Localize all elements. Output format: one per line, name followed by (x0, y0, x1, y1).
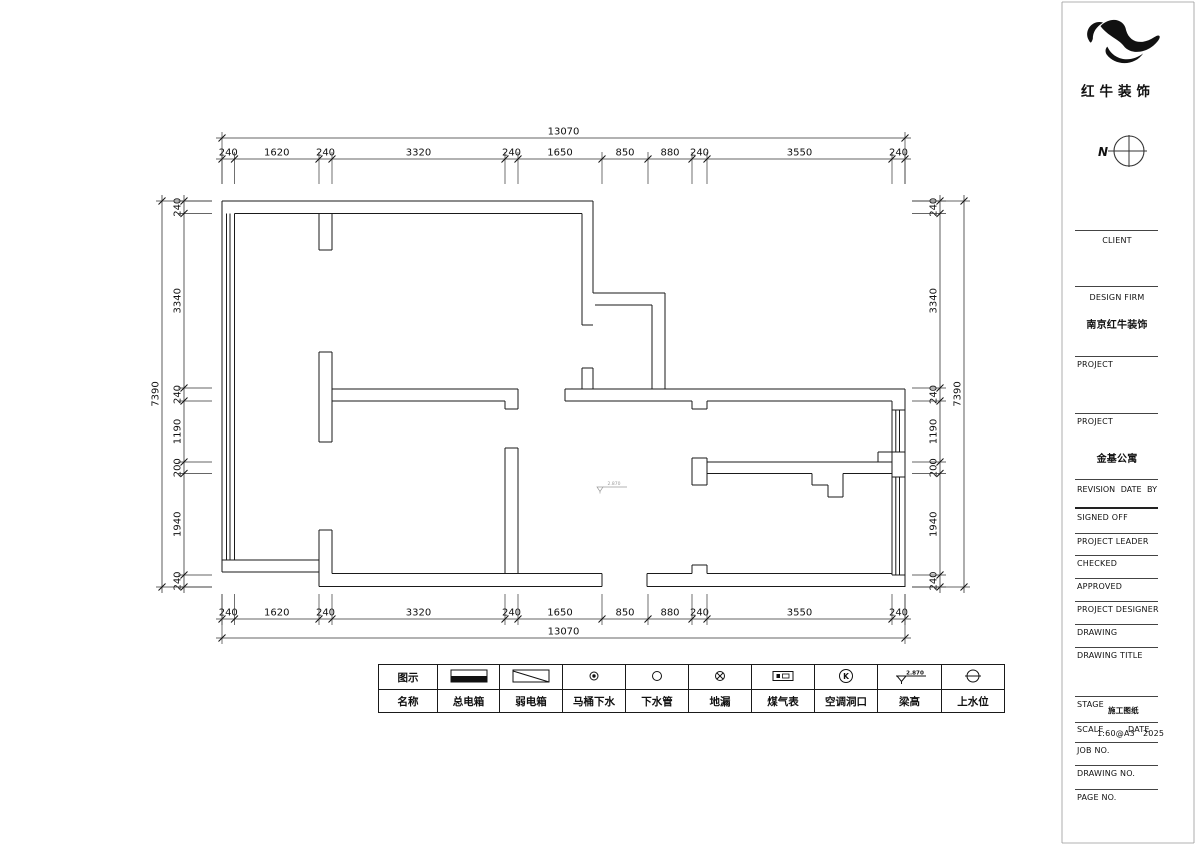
brand-logo-text: 红牛装饰 (1072, 80, 1164, 100)
legend-table: 图示 K 2.870 名称 总电箱 弱电箱 马桶下水 下水管 地漏 煤气表 空调… (378, 664, 1005, 713)
dim-value: 200 (173, 458, 184, 477)
legend-symbol-row-label: 图示 (379, 665, 438, 690)
date-value: 2025 (1143, 729, 1164, 738)
dim-value: 7390 (953, 381, 964, 406)
revision-row: REVISION DATE BY (1077, 485, 1157, 494)
dim-value: 240 (929, 571, 940, 590)
stage-value: 施工图纸 (1108, 705, 1139, 716)
project-value: 金基公寓 (1075, 450, 1159, 465)
legend-item-name: 空调洞口 (815, 690, 878, 713)
walls-layer (222, 201, 905, 587)
dim-value: 1620 (264, 148, 289, 159)
drawing-sheet: { "brand": { "logo_text": "红牛装饰" }, "com… (0, 0, 1200, 845)
dim-value: 1650 (547, 608, 572, 619)
dim-value: 240 (690, 148, 709, 159)
job-no-label: JOB NO. (1077, 746, 1110, 755)
drain-pipe-icon (635, 666, 679, 686)
by-label: BY (1147, 485, 1157, 494)
legend-name-row: 名称 总电箱 弱电箱 马桶下水 下水管 地漏 煤气表 空调洞口 梁高 上水位 (379, 690, 1005, 713)
legend-item-name: 梁高 (878, 690, 942, 713)
dim-top-chain: 2401620240332024016508508802403550240 (216, 148, 911, 185)
design-firm-label: DESIGN FIRM (1075, 293, 1159, 302)
legend-item-name: 上水位 (942, 690, 1005, 713)
dim-right-total: 7390 (912, 195, 970, 593)
toilet-drain-icon (572, 666, 616, 686)
dim-value: 3320 (406, 148, 431, 159)
date-label: DATE (1121, 485, 1142, 494)
dim-value: 3340 (929, 288, 940, 313)
project-label-1: PROJECT (1077, 360, 1113, 369)
dim-left-chain: 240334024011902001940240 (173, 195, 213, 593)
ac-opening-icon: K (824, 666, 868, 686)
dim-value: 7390 (151, 381, 162, 406)
dim-value: 3550 (787, 608, 812, 619)
brand-logo-icon (1080, 12, 1162, 76)
approved-label: APPROVED (1077, 582, 1122, 591)
dim-value: 1190 (173, 419, 184, 444)
dim-value: 1620 (264, 608, 289, 619)
design-firm-value: 南京红牛装饰 (1075, 316, 1159, 331)
dim-value: 1940 (173, 512, 184, 537)
dim-value: 1940 (929, 512, 940, 537)
dim-value: 1190 (929, 419, 940, 444)
drawing-no-label: DRAWING NO. (1077, 769, 1135, 778)
legend-item-name: 下水管 (626, 690, 689, 713)
legend-item-name: 弱电箱 (500, 690, 563, 713)
project-leader-label: PROJECT LEADER (1077, 537, 1149, 546)
stage-label: STAGE (1077, 700, 1104, 709)
dim-value: 3340 (173, 288, 184, 313)
floor-drain-icon (698, 666, 742, 686)
svg-text:K: K (843, 671, 850, 680)
legend-symbol-row: 图示 K 2.870 (379, 665, 1005, 690)
dim-value: 240 (219, 148, 238, 159)
drawing-title-label: DRAWING TITLE (1077, 651, 1143, 660)
dim-bottom-chain: 2401620240332024016508508802403550240 (216, 594, 911, 625)
floor-plan-canvas: 2.87024016202403320240165085088024035502… (0, 0, 1200, 845)
dim-value: 880 (660, 148, 679, 159)
dim-right-chain: 240334024011902001940240 (912, 195, 946, 593)
main-electric-box-icon (447, 666, 491, 686)
dim-value: 880 (660, 608, 679, 619)
checked-label: CHECKED (1077, 559, 1117, 568)
water-supply-level-icon (951, 666, 995, 686)
dim-value: 2.870 (608, 481, 621, 487)
dim-value: 1650 (547, 148, 572, 159)
legend-item-name: 煤气表 (752, 690, 815, 713)
beam-height-icon-value: 2.870 (906, 670, 924, 676)
dim-value: 3320 (406, 608, 431, 619)
dim-value: 240 (929, 198, 940, 217)
beam-height-icon: 2.870 (886, 666, 934, 686)
dim-value: 240 (173, 571, 184, 590)
revision-label: REVISION (1077, 485, 1115, 494)
dim-value: 200 (929, 458, 940, 477)
project-designer-label: PROJECT DESIGNER (1077, 605, 1159, 614)
gas-meter-icon (761, 666, 805, 686)
signed-off-label: SIGNED OFF (1077, 513, 1128, 522)
dim-value: 13070 (548, 627, 580, 638)
dim-value: 850 (615, 148, 634, 159)
legend-item-name: 马桶下水 (563, 690, 626, 713)
legend-item-name: 总电箱 (438, 690, 500, 713)
dim-value: 3550 (787, 148, 812, 159)
dim-value: 13070 (548, 127, 580, 138)
north-arrow-icon: N (1095, 132, 1151, 172)
dim-value: 240 (219, 608, 238, 619)
beam-height-marker: 2.870 (597, 481, 627, 494)
dim-value: 850 (615, 608, 634, 619)
weak-electric-box-icon (509, 666, 553, 686)
legend-name-row-label: 名称 (379, 690, 438, 713)
client-label: CLIENT (1075, 236, 1159, 245)
legend-item-name: 地漏 (689, 690, 752, 713)
drawing-label: DRAWING (1077, 628, 1117, 637)
project-label-2: PROJECT (1077, 417, 1113, 426)
page-no-label: PAGE NO. (1077, 793, 1117, 802)
dim-value: 240 (173, 198, 184, 217)
dim-value: 240 (690, 608, 709, 619)
north-label: N (1098, 145, 1108, 159)
